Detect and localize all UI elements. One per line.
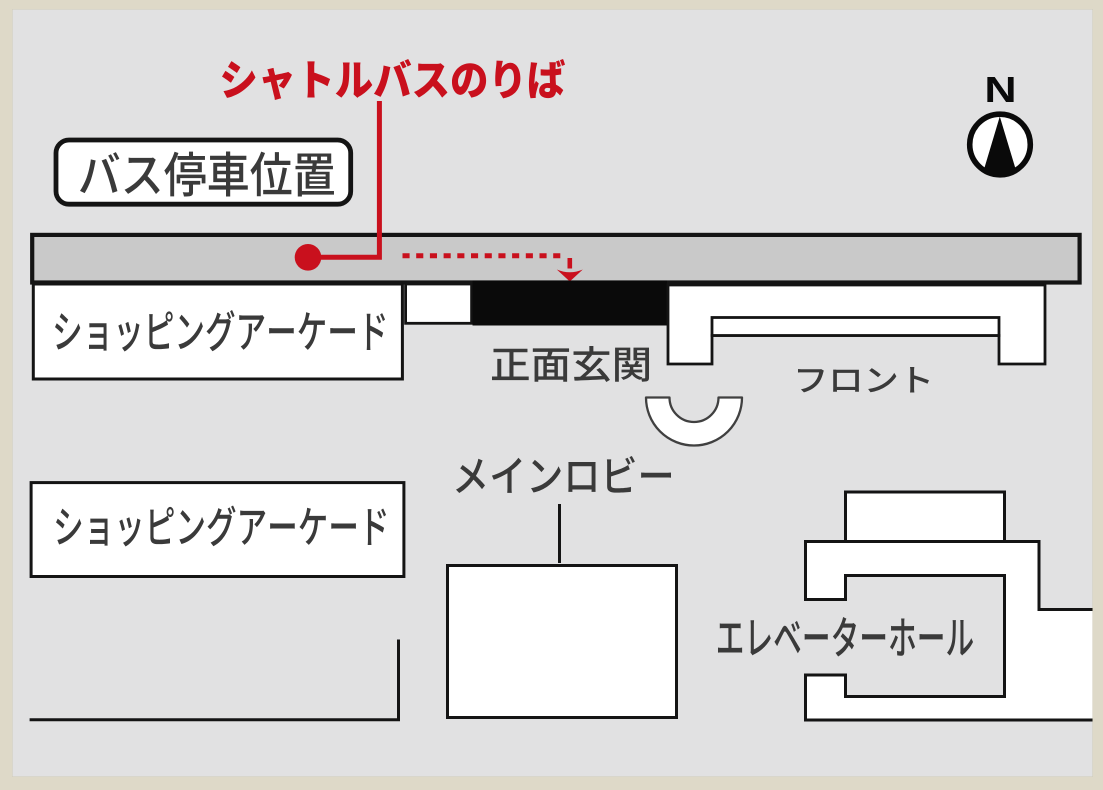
svg-text:N: N [984,69,1016,110]
